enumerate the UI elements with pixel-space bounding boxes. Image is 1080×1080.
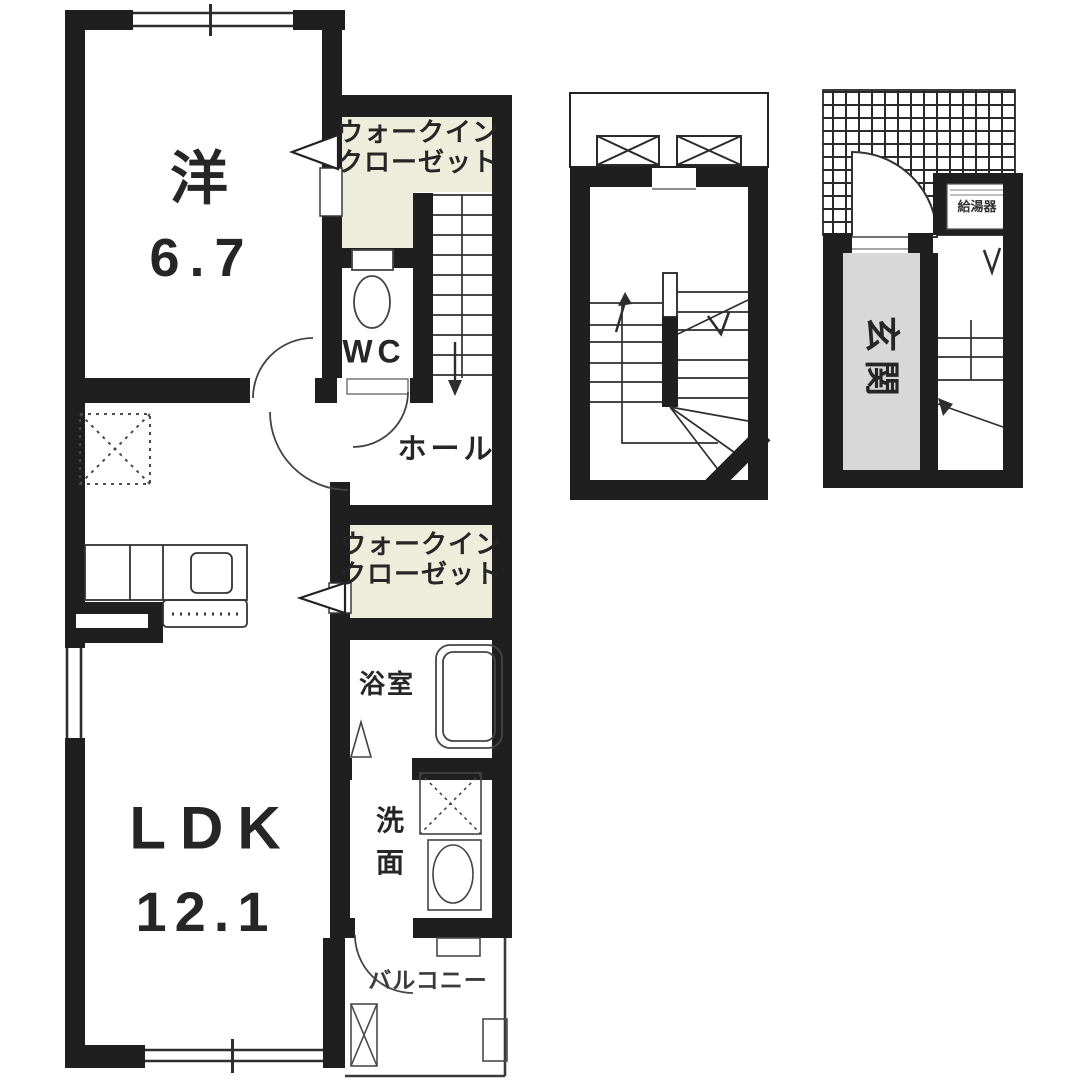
stairs-main	[433, 195, 492, 378]
kitchen-partition-slot	[76, 614, 148, 628]
stairwell-diagram	[570, 93, 768, 500]
label-utility-box: 給湯器	[949, 199, 1005, 215]
entrance-door-threshold	[852, 237, 908, 249]
bathroom-folding-door-icon	[351, 722, 371, 757]
stairs-down-arrow	[448, 342, 462, 396]
door-arc-ldk-hall	[270, 412, 348, 490]
label-washroom: 洗面	[373, 800, 407, 884]
label-walk-in-closet-upper-1: ウォークイン	[337, 118, 499, 148]
entrance-diagram	[823, 90, 1023, 488]
label-western-room-area: 6.7	[149, 227, 254, 289]
toilet-icon	[352, 250, 393, 328]
window-left	[65, 648, 85, 738]
balcony-fixtures	[351, 938, 507, 1066]
window-top	[133, 4, 293, 36]
label-walk-in-closet-lower-2: クローゼット	[340, 560, 502, 590]
label-western-room: 洋	[170, 147, 230, 214]
sink-icon	[428, 840, 481, 910]
closet-door-marker-upper	[292, 135, 342, 216]
door-arc-western-room	[253, 338, 313, 398]
label-wc: WC	[342, 334, 405, 371]
balcony-railing	[345, 938, 505, 1076]
label-hall: ホール	[397, 433, 496, 466]
washing-machine-icon	[420, 773, 481, 834]
label-balcony: バルコニー	[368, 967, 488, 993]
entrance-stairs	[938, 320, 1003, 427]
label-ldk-area: 12.1	[136, 880, 277, 944]
stairwell-up-arrow	[616, 292, 632, 332]
window-bottom	[145, 1039, 323, 1073]
label-walk-in-closet-lower-1: ウォークイン	[340, 530, 502, 560]
refrigerator-space	[80, 414, 150, 484]
stairwell-newel	[663, 273, 677, 317]
label-entrance: 玄関	[861, 316, 902, 404]
label-bathroom: 浴室	[359, 670, 415, 700]
label-walk-in-closet-upper-2: クローゼット	[337, 148, 499, 178]
entrance-stairs-down-arrow	[938, 248, 1000, 416]
floor-plan-canvas: 洋 6.7 ウォークイン クローゼット WC ホール ウォークイン クローゼット…	[0, 0, 1080, 1080]
label-ldk: LDK	[129, 794, 294, 863]
